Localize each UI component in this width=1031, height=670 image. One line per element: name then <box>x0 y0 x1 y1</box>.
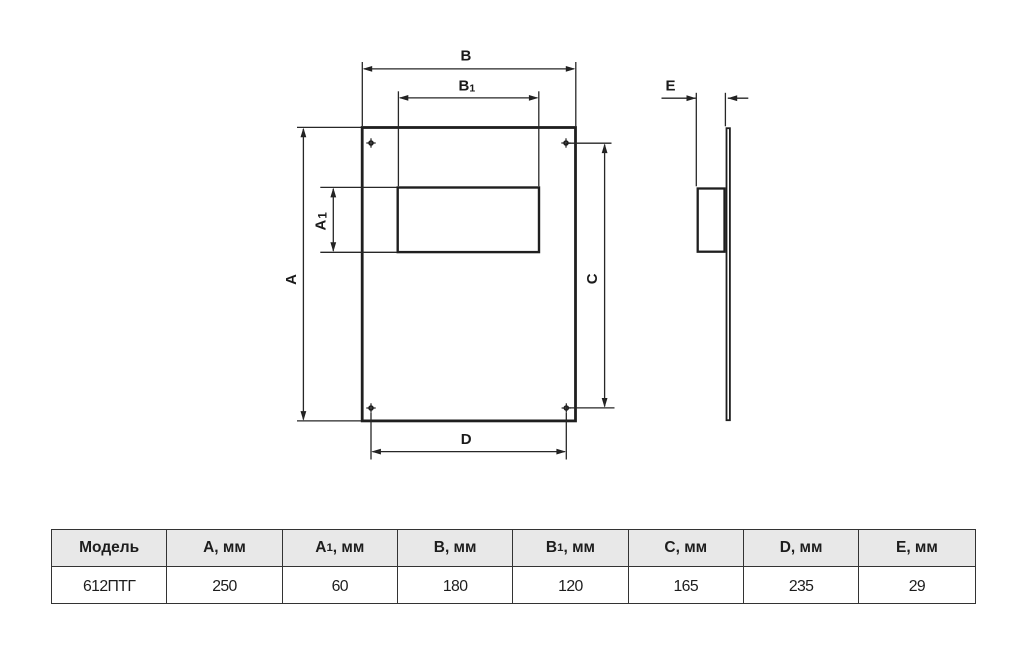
svg-text:A1: A1 <box>312 212 329 231</box>
svg-text:E: E <box>665 78 675 95</box>
svg-text:B: B <box>460 48 471 65</box>
svg-text:A: A <box>283 274 300 285</box>
svg-text:B1: B1 <box>459 77 476 94</box>
svg-text:C: C <box>584 273 601 284</box>
svg-text:D: D <box>461 431 472 448</box>
